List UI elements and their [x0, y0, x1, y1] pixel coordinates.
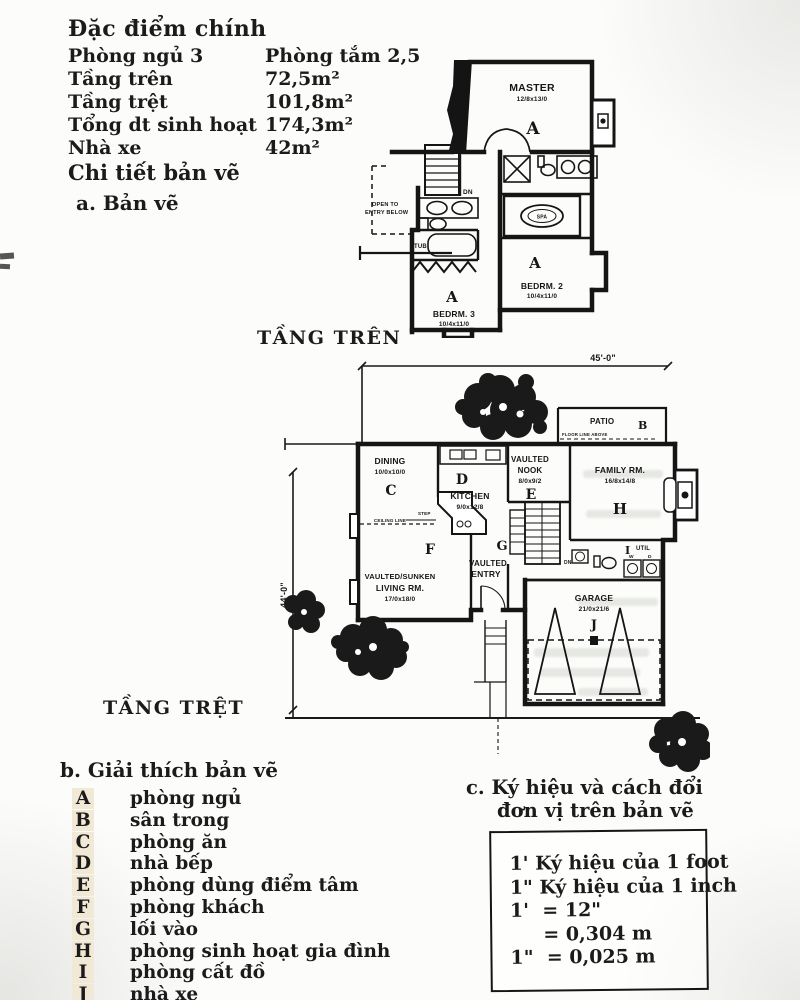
legend-label: sân trong [130, 810, 229, 831]
family-fireplace [664, 470, 697, 520]
front-walk [474, 620, 506, 754]
dn-label: DN [463, 189, 473, 196]
kitchen-dims: 9/0x12/8 [457, 504, 484, 511]
dining-dims: 10/0x10/0 [375, 469, 406, 476]
entry-name2: ENTRY [471, 569, 501, 579]
legend-key: D [72, 853, 94, 874]
master-name: MASTER [509, 82, 555, 94]
bay-window [350, 514, 358, 538]
kitchen-counters [438, 446, 506, 534]
upper-exterior-walls [392, 62, 606, 338]
legend-item: Hphòng sinh hoạt gia đình [60, 941, 390, 963]
legend-item: Ephòng dùng điểm tâm [60, 875, 390, 897]
spa-label: SPA [537, 215, 548, 221]
front-door [481, 586, 505, 610]
legend-key: I [72, 962, 94, 983]
family-dims: 16/8x14/8 [605, 478, 636, 485]
specs-title: Đặc điểm chính [68, 16, 267, 42]
legend-key: F [72, 897, 94, 918]
entry-letter: G [496, 539, 507, 554]
legend-title: b. Giải thích bản vẽ [60, 758, 278, 782]
ceiling-line-label: CEILING LINE [374, 518, 406, 523]
garage-name: GARAGE [575, 593, 614, 603]
master-dims: 12/8x13/0 [517, 96, 548, 103]
legend-label: phòng sinh hoạt gia đình [130, 941, 390, 962]
width-dimension: 45'-0" [590, 353, 616, 363]
kitchen-name: KITCHEN [450, 491, 489, 501]
bedrm3-dims: 10/4x11/0 [439, 321, 470, 328]
bedrm2-letter: A [528, 254, 541, 272]
legend-item: Fphòng khách [60, 897, 390, 919]
spa-room: SPA [504, 196, 580, 236]
step-label: STEP [418, 511, 431, 516]
dryer-label: D [648, 554, 652, 560]
tree [331, 616, 409, 680]
spec-label: Phòng ngủ 3 [68, 45, 203, 67]
spec-label: Tầng trệt [68, 91, 168, 113]
legend-label: phòng ăn [130, 832, 227, 853]
scanned-document-page: Đặc điểm chính Phòng ngủ 3 Phòng tắm 2,5… [0, 0, 800, 1000]
unit-line: 1' Ký hiệu của 1 foot [509, 851, 705, 877]
units-conversion-box: 1' Ký hiệu của 1 foot 1" Ký hiệu của 1 i… [489, 829, 709, 992]
unit-line: = 0,304 m [510, 921, 706, 947]
open-below-label-1: OPEN TO [372, 202, 399, 208]
dining-name: DINING [375, 456, 406, 466]
living-name1: VAULTED/SUNKEN [365, 572, 436, 581]
legend-label: lối vào [130, 919, 198, 940]
details-title: Chi tiết bản vẽ [68, 160, 240, 185]
french-doors [484, 129, 530, 152]
legend-label: phòng cất đồ [130, 962, 265, 983]
hatched-wall [447, 60, 472, 154]
unit-line: 1" Ký hiệu của 1 inch [510, 874, 706, 900]
units-title-line2: đơn vị trên bản vẽ [497, 799, 694, 822]
legend-item: Dnhà bếp [60, 853, 390, 875]
legend-item: Iphòng cất đồ [60, 962, 390, 984]
legend-key: E [72, 875, 94, 896]
spec-label: Tầng trên [68, 68, 173, 90]
legend-label: nhà bếp [130, 853, 213, 874]
master-bath-fixtures [504, 156, 597, 182]
units-title-line1: c. Ký hiệu và cách đổi [466, 776, 703, 799]
family-name: FAMILY RM. [595, 465, 645, 475]
upper-plan-caption: TẦNG TRÊN [257, 327, 401, 349]
legend-label: nhà xe [130, 984, 198, 1000]
legend-list: Aphòng ngủ Bsân trong Cphòng ăn Dnhà bếp… [60, 788, 390, 1000]
unit-line: 1" = 0,025 m [510, 945, 706, 971]
patio-letter: B [638, 419, 647, 432]
open-below-label-2: ENTRY BELOW [365, 210, 409, 216]
living-letter: F [425, 542, 435, 558]
living-name2: LIVING RM. [376, 583, 424, 593]
legend-key: H [72, 941, 94, 962]
garage-dims: 21/0x21/6 [579, 606, 610, 613]
laundry-bath-fixtures [572, 550, 660, 577]
garage-letter: J [590, 618, 597, 633]
spec-value: 42m² [265, 137, 320, 159]
nook-letter: E [526, 487, 537, 503]
legend-label: phòng khách [130, 897, 265, 918]
nook-name2: NOOK [518, 466, 543, 475]
patio-name: PATIO [590, 417, 614, 426]
legend-key: J [72, 984, 94, 1000]
lower-plan-caption: TẦNG TRỆT [103, 697, 244, 719]
legend-key: A [72, 788, 94, 809]
master-letter: A [525, 119, 540, 139]
legend-key: B [72, 810, 94, 831]
legend-label: phòng ngủ [130, 788, 241, 809]
legend-item: Bsân trong [60, 810, 390, 832]
entry-name1: VAULTED [469, 559, 507, 568]
family-letter: H [613, 500, 627, 518]
tree [284, 590, 325, 633]
spec-value: 72,5m² [265, 68, 340, 90]
util-letter: I [625, 544, 630, 557]
legend-item: Glối vào [60, 919, 390, 941]
bedrm2-dims: 10/4x11/0 [527, 293, 558, 300]
dining-letter: C [385, 483, 396, 499]
bleed-through-marks [534, 470, 663, 696]
kitchen-letter: D [456, 472, 468, 488]
nook-name1: VAULTED [511, 455, 549, 464]
spec-value: 101,8m² [265, 91, 353, 113]
spec-label: Nhà xe [68, 137, 142, 159]
spec-label: Tổng dt sinh hoạt [68, 114, 257, 136]
tree [455, 373, 548, 440]
upper-floor-plan: DN OPEN TO ENTRY BELOW TUB [352, 48, 672, 338]
bedrm3-letter: A [445, 288, 458, 306]
legend-label: phòng dùng điểm tâm [130, 875, 359, 896]
spec-value: 174,3m² [265, 114, 353, 136]
legend-item: Jnhà xe [60, 984, 390, 1000]
bay-window [350, 580, 358, 604]
upper-stairs [425, 145, 459, 195]
tree [649, 711, 710, 772]
patio: PATIO B FLOOR LINE ABOVE [558, 408, 666, 444]
legend-key: C [72, 832, 94, 853]
hall-bath-fixtures [418, 198, 478, 230]
legend-item: Cphòng ăn [60, 832, 390, 854]
living-dims: 17/0x18/0 [385, 596, 416, 603]
patio-note: FLOOR LINE ABOVE [562, 432, 608, 437]
util-name: UTIL [636, 546, 650, 552]
upper-fireplace [592, 100, 614, 146]
legend-key: G [72, 919, 94, 940]
tub-label: TUB [414, 244, 427, 250]
closet-rod [412, 262, 476, 272]
legend-item: Aphòng ngủ [60, 788, 390, 810]
unit-line: 1' = 12" [510, 898, 706, 924]
scan-artifact [0, 264, 10, 270]
bedrm3-name: BEDRM. 3 [433, 309, 475, 319]
scan-artifact [0, 253, 14, 260]
lower-stairs [510, 502, 560, 564]
bedrm2-name: BEDRM. 2 [521, 281, 563, 291]
drawing-subtitle: a. Bản vẽ [76, 191, 179, 215]
open-below-outline [372, 166, 410, 234]
dn-label: DN [564, 560, 572, 566]
lower-floor-plan: 45'-0" 44'-0" PATIO B FLOOR LINE ABOVE [278, 352, 710, 772]
nook-dims: 8/0x9/2 [518, 478, 541, 485]
deck-rail [360, 246, 452, 260]
